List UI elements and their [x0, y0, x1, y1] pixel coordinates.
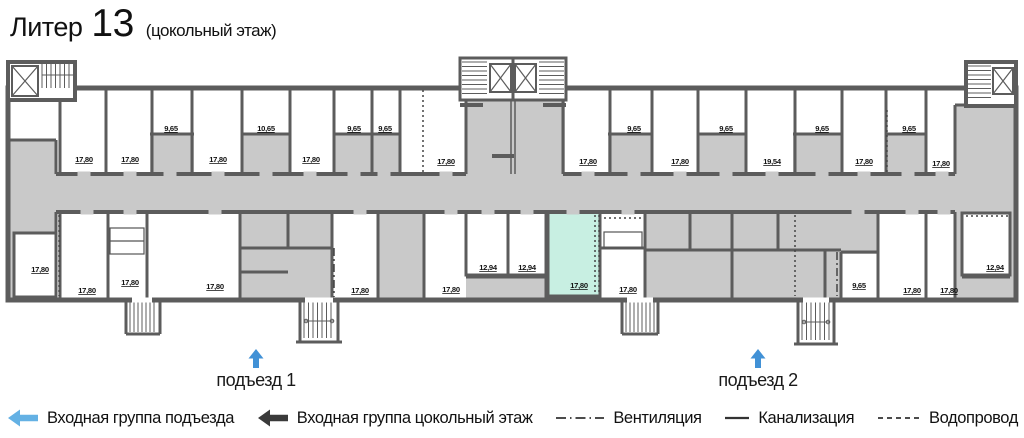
room-area-label: 17,80	[31, 265, 49, 274]
room-area-label: 17,80	[351, 286, 369, 295]
room-area-label: 9,65	[347, 124, 362, 133]
entrance-stairs	[126, 300, 838, 344]
room-area-label: 9,65	[902, 124, 917, 133]
room-area-label: 17,80	[209, 155, 227, 164]
room-area-label: 17,80	[940, 286, 958, 295]
room-area-label: 17,80	[442, 285, 460, 294]
entrance-2: подъезд 2	[718, 349, 798, 390]
room-area-label-highlighted: 17,80	[570, 281, 588, 290]
legend-entry-group-basement-label: Входная группа цокольный этаж	[297, 409, 533, 428]
entrance-2-arrow-icon	[751, 349, 766, 368]
room-area-label: 9,65	[852, 281, 867, 290]
room-area-label: 17,80	[903, 286, 921, 295]
room-area-label: 17,80	[619, 285, 637, 294]
corridor-area	[8, 174, 1016, 212]
entrance-1-arrow-icon	[249, 349, 264, 368]
stair-cores	[8, 58, 1016, 106]
room-area-label: 12,94	[986, 263, 1005, 272]
room-area-label: 17,80	[75, 155, 93, 164]
room-area-label: 19,54	[763, 157, 782, 166]
room-area-label: 17,80	[121, 155, 139, 164]
solid-line-icon	[725, 413, 749, 423]
legend-water-label: Водопровод	[929, 409, 1018, 428]
legend-entry-group-label: Входная группа подъезда	[47, 409, 234, 428]
dashed-line-icon	[878, 413, 920, 423]
legend-ventilation: Вентиляция	[556, 409, 701, 428]
dash-dot-line-icon	[556, 413, 604, 423]
room-area-label: 17,80	[671, 157, 689, 166]
floorplan-page: Литер 13 (цокольный этаж)	[0, 0, 1024, 438]
entrance-2-label: подъезд 2	[718, 370, 798, 390]
room-area-label: 17,80	[932, 159, 950, 168]
legend-sewerage-label: Канализация	[758, 409, 854, 428]
black-left-arrow-icon	[258, 409, 288, 427]
legend-entry-group-basement: Входная группа цокольный этаж	[258, 409, 533, 428]
room-area-label: 9,65	[378, 124, 393, 133]
legend-sewerage: Канализация	[725, 409, 854, 428]
room-area-label: 9,65	[627, 124, 642, 133]
room-area-label: 9,65	[719, 124, 734, 133]
room-area-label: 17,80	[855, 157, 873, 166]
legend: Входная группа подъезда Входная группа ц…	[8, 402, 1018, 434]
room-area-label: 12,94	[518, 263, 537, 272]
room-area-label: 17,80	[302, 155, 320, 164]
room-area-label: 9,65	[164, 124, 179, 133]
room-area-label: 17,80	[78, 286, 96, 295]
room-area-label: 17,80	[206, 282, 224, 291]
room-area-label: 12,94	[479, 263, 498, 272]
blue-left-arrow-icon	[8, 409, 38, 427]
legend-ventilation-label: Вентиляция	[613, 409, 701, 428]
legend-water: Водопровод	[878, 409, 1018, 428]
room-area-label: 17,80	[579, 157, 597, 166]
legend-entry-group: Входная группа подъезда	[8, 409, 234, 428]
room-area-label: 17,80	[121, 278, 139, 287]
room-area-label: 10,65	[257, 124, 276, 133]
floor-plan: 17,80 17,80 9,65 17,80 10,65 17,80 9,65 …	[0, 0, 1024, 438]
room-area-label: 17,80	[437, 157, 455, 166]
room-area-label: 9,65	[815, 124, 830, 133]
entrance-1: подъезд 1	[216, 349, 296, 390]
entrance-1-label: подъезд 1	[216, 370, 296, 390]
